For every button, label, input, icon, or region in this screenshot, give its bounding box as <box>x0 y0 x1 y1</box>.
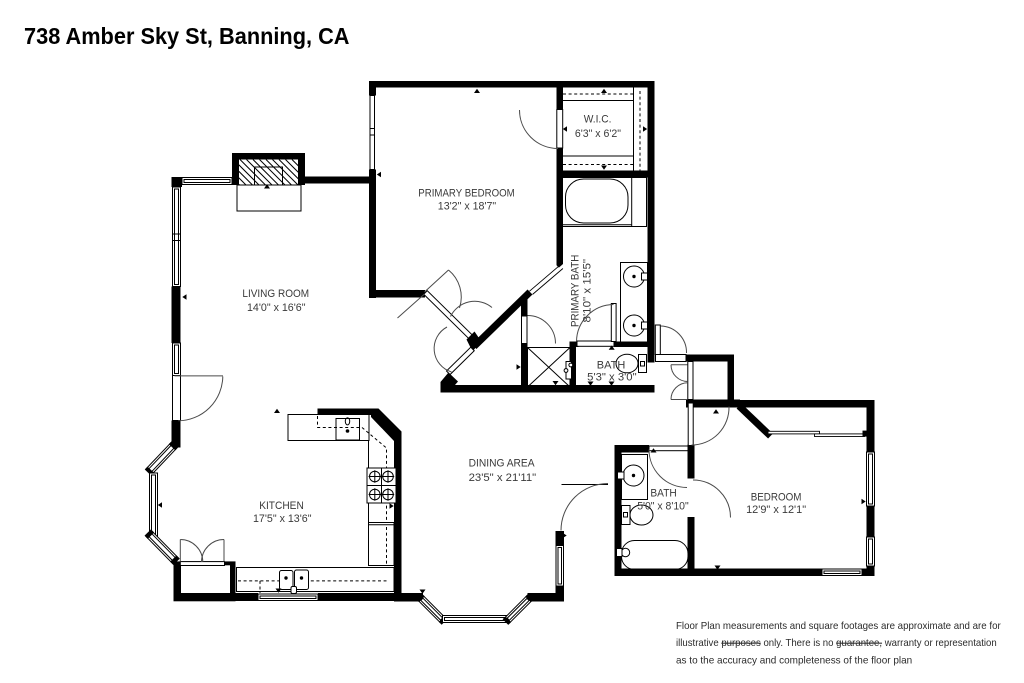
svg-text:Floor Plan measurements and sq: Floor Plan measurements and square foota… <box>676 620 1001 632</box>
svg-text:13'2" x 18'7": 13'2" x 18'7" <box>438 201 496 213</box>
svg-text:5'0" x 8'10": 5'0" x 8'10" <box>637 501 689 513</box>
svg-text:BEDROOM: BEDROOM <box>751 491 802 503</box>
svg-text:17'5" x 13'6": 17'5" x 13'6" <box>253 513 312 525</box>
svg-text:DINING AREA: DINING AREA <box>469 458 536 470</box>
svg-text:PRIMARY BEDROOM: PRIMARY BEDROOM <box>418 188 514 200</box>
svg-text:14'0" x 16'6": 14'0" x 16'6" <box>247 302 306 314</box>
svg-text:12'9" x 12'1": 12'9" x 12'1" <box>746 504 806 516</box>
svg-text:738 Amber Sky St, Banning, CA: 738 Amber Sky St, Banning, CA <box>24 23 350 49</box>
svg-text:6'3" x 6'2": 6'3" x 6'2" <box>575 128 621 140</box>
svg-text:as to the accuracy and complet: as to the accuracy and completeness of t… <box>676 654 912 666</box>
svg-text:8'10" x 15'5": 8'10" x 15'5" <box>582 259 594 323</box>
svg-text:BATH: BATH <box>597 359 626 371</box>
svg-text:BATH: BATH <box>650 487 676 499</box>
svg-text:23'5" x 21'11": 23'5" x 21'11" <box>469 472 537 484</box>
svg-text:KITCHEN: KITCHEN <box>259 500 304 512</box>
svg-text:illustrative purposes only. Th: illustrative purposes only. There is no … <box>676 637 997 649</box>
svg-text:W.I.C.: W.I.C. <box>584 114 612 126</box>
svg-text:PRIMARY BATH: PRIMARY BATH <box>570 255 582 327</box>
svg-text:LIVING ROOM: LIVING ROOM <box>242 288 309 300</box>
